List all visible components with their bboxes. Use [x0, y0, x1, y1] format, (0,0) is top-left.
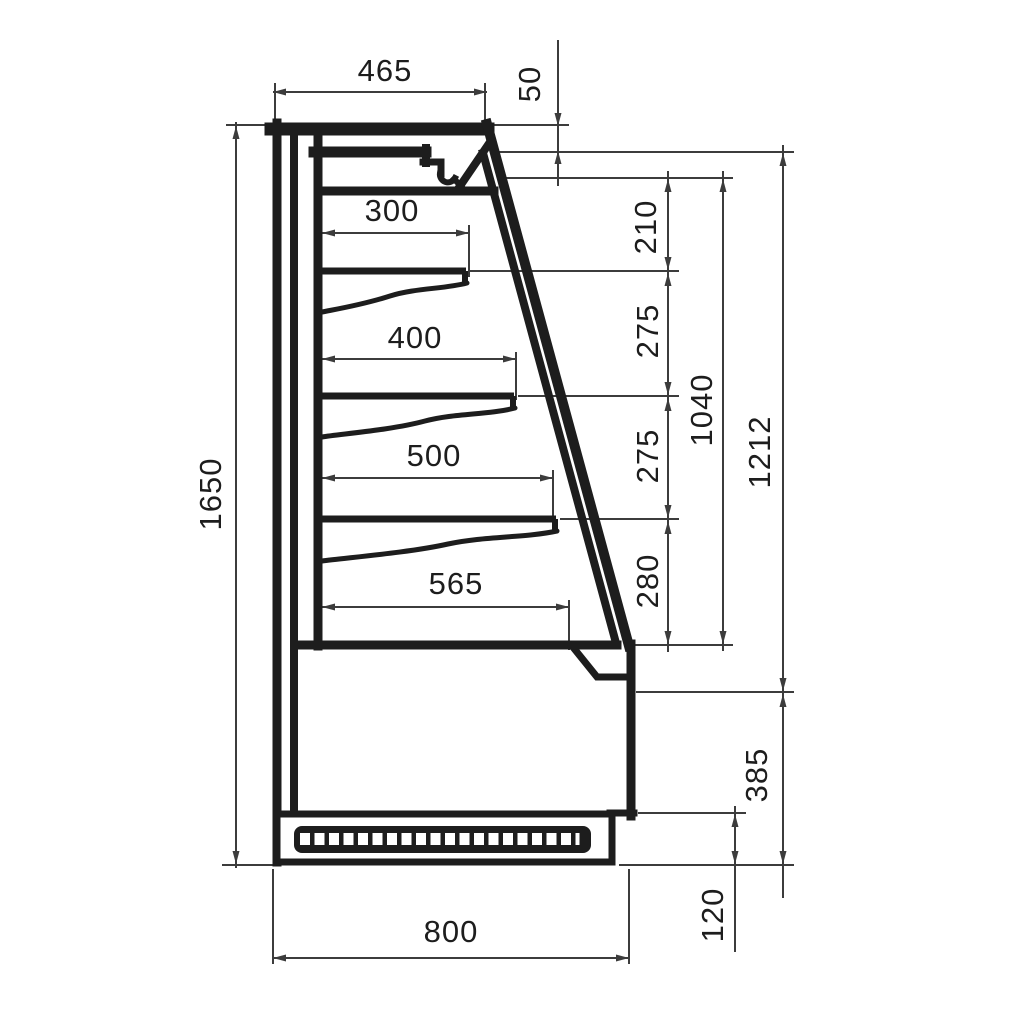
cabinet-section-drawing	[0, 0, 1024, 1024]
dim-label-gap-bottom: 280	[630, 554, 666, 609]
shelf-2-underside	[322, 408, 515, 437]
dim-label-display-height: 1212	[742, 416, 778, 489]
dim-label-base-shelf-depth: 565	[429, 566, 484, 602]
dim-label-shelf3-depth: 500	[407, 438, 462, 474]
front-glass-outer	[487, 124, 629, 646]
dim-label-overall-height: 1650	[193, 458, 229, 531]
bumper-notch	[572, 646, 630, 677]
dim-label-shelf2-depth: 400	[388, 320, 443, 356]
dim-label-canopy-height: 50	[512, 66, 548, 102]
dim-label-gap-top: 210	[628, 200, 664, 255]
dim-label-gap-lower-mid: 275	[630, 429, 666, 484]
shelves	[322, 271, 557, 561]
base-grille	[294, 826, 591, 853]
shelf-1-underside	[322, 283, 467, 312]
dim-label-shelf1-depth: 300	[365, 193, 420, 229]
dim-label-base-height: 385	[739, 748, 775, 803]
technical-drawing-canvas: 465 50 300 400 500 565 1650 210 275 275 …	[0, 0, 1024, 1024]
dim-label-plinth-height: 120	[695, 888, 731, 943]
dim-label-gap-upper-mid: 275	[630, 304, 666, 359]
shelf-3-underside	[322, 531, 557, 561]
dim-label-overall-depth: 800	[424, 914, 479, 950]
dim-label-top-depth: 465	[358, 53, 413, 89]
dim-label-opening-height: 1040	[684, 374, 720, 447]
